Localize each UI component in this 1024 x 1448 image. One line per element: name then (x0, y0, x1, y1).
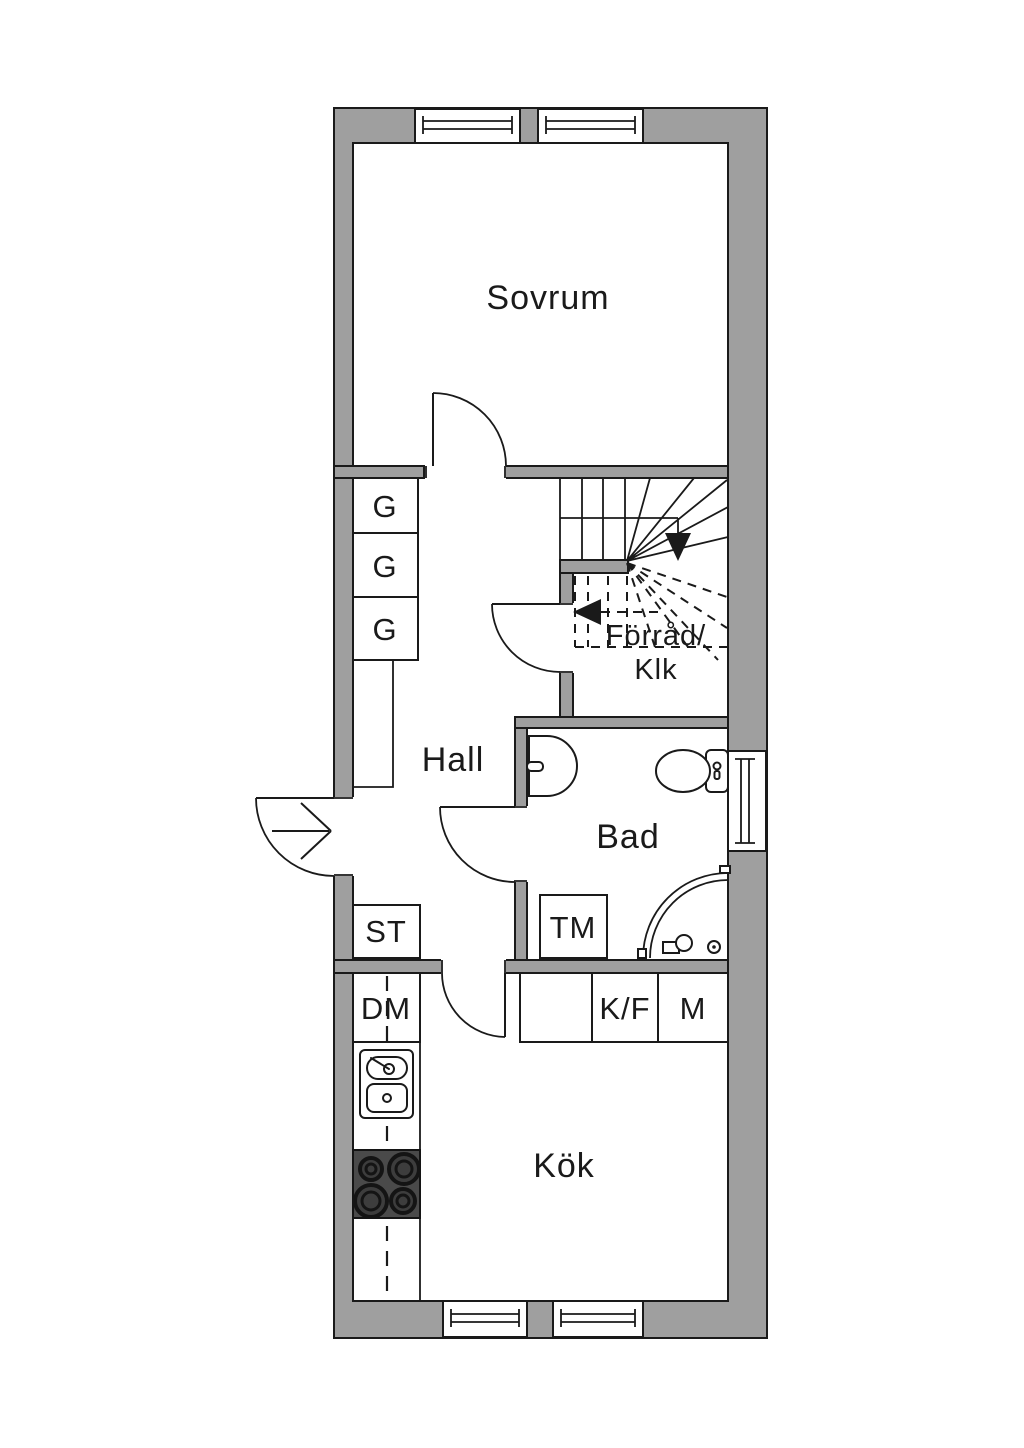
microwave-label: M (680, 991, 707, 1026)
door-swing-icon (440, 807, 515, 882)
storage-door (492, 604, 560, 672)
bedroom-door (433, 393, 506, 466)
bedroom-label: Sovrum (486, 279, 609, 317)
storage-label-line1: Förråd/ (606, 620, 706, 652)
wardrobe-label-3: G (372, 612, 397, 647)
stairs-up-icon (560, 478, 728, 561)
hall-cabinet-line (353, 660, 393, 787)
wall-bath-top (515, 717, 728, 728)
bathroom-door (440, 807, 515, 882)
bathroom-sink-icon (527, 736, 577, 796)
wardrobe-label-1: G (372, 489, 397, 524)
storage-door-opening (558, 603, 575, 673)
window-icon (443, 1301, 527, 1337)
bathroom-door-opening (513, 806, 529, 882)
wall-storage-upper (560, 573, 573, 604)
washing-machine-label: TM (550, 910, 597, 945)
room-labels: Sovrum Hall Bad Kök Förråd/ Klk (422, 279, 707, 1185)
bedroom-door-opening (425, 464, 506, 480)
window-icon (728, 751, 766, 851)
storage-label-line2: Klk (634, 654, 677, 686)
cleaning-closet-label: ST (365, 914, 407, 949)
bedroom-window-right (538, 109, 643, 143)
kitchen-door-opening (441, 958, 506, 975)
wall-bath-left-lower (515, 881, 527, 960)
corner-shower-icon (638, 866, 730, 958)
fridge-freezer-label: K/F (599, 991, 650, 1026)
wall-kitchen-left (334, 960, 442, 973)
door-swing-icon (442, 973, 505, 1037)
wall-storage-lower (560, 672, 573, 717)
kitchen-window-left (443, 1301, 527, 1337)
kitchen-sink-icon (360, 1050, 413, 1118)
door-swing-icon (492, 604, 560, 672)
entry-arrow-icon (272, 803, 331, 859)
dishwasher-label: DM (361, 991, 411, 1026)
wall-bedroom-right (505, 466, 728, 478)
bedroom-window-left (415, 109, 520, 143)
bathroom-label: Bad (596, 818, 660, 856)
kitchen-door (442, 973, 505, 1037)
wall-kitchen-right (505, 960, 728, 973)
wardrobe-label-2: G (372, 549, 397, 584)
toilet-icon (656, 750, 728, 792)
stove-icon (353, 1150, 420, 1218)
entrance-door (256, 798, 334, 876)
door-swing-icon (433, 393, 506, 466)
wall-bath-left-upper (515, 728, 527, 807)
window-icon (415, 109, 520, 143)
door-swing-icon (256, 798, 334, 876)
window-icon (553, 1301, 643, 1337)
bathroom-window (728, 751, 766, 851)
wall-bedroom-left (334, 466, 424, 478)
floorplan-canvas: Sovrum Hall Bad Kök Förråd/ Klk G G G ST… (0, 0, 1024, 1448)
kitchen-window-right (553, 1301, 643, 1337)
window-icon (538, 109, 643, 143)
kitchen-label: Kök (533, 1147, 595, 1185)
understair-arrow-icon (573, 599, 601, 625)
entrance-opening (332, 797, 355, 876)
wall-stair-ledge (560, 560, 628, 573)
counter-box (520, 973, 592, 1042)
hall-label: Hall (422, 741, 485, 779)
